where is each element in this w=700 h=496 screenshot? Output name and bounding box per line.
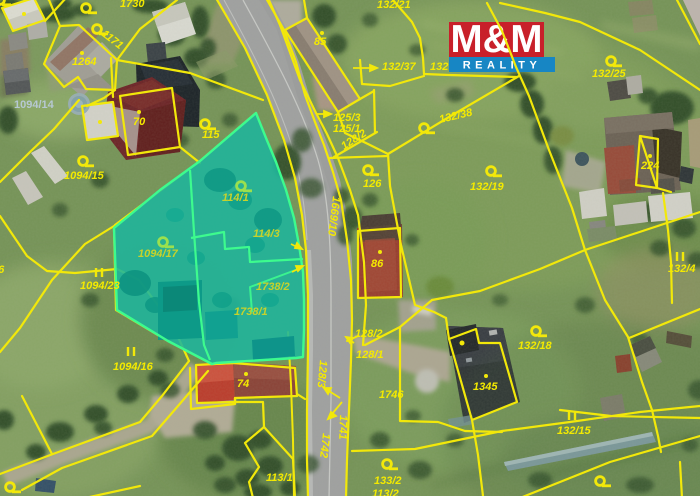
svg-text:126: 126	[363, 178, 382, 190]
svg-text:224: 224	[640, 160, 659, 172]
svg-text:132/21: 132/21	[377, 0, 411, 11]
svg-text:132/37: 132/37	[382, 61, 417, 73]
svg-text:113/2: 113/2	[372, 488, 399, 496]
svg-text:1345: 1345	[473, 381, 498, 393]
svg-text:128/2: 128/2	[355, 328, 383, 340]
svg-text:133/2: 133/2	[374, 475, 402, 487]
svg-text:132/25: 132/25	[592, 68, 627, 80]
svg-text:M&M: M&M	[451, 18, 543, 61]
svg-text:132/19: 132/19	[470, 181, 505, 193]
svg-text:REALITY: REALITY	[463, 60, 542, 72]
svg-text:132/4: 132/4	[668, 263, 696, 275]
svg-text:74: 74	[237, 378, 249, 390]
svg-text:114/3: 114/3	[253, 228, 280, 240]
svg-text:113/1: 113/1	[266, 472, 293, 484]
svg-text:1094/14: 1094/14	[14, 99, 55, 111]
svg-text:128/3: 128/3	[315, 360, 329, 388]
svg-text:86: 86	[371, 258, 384, 270]
svg-text:1738/2: 1738/2	[256, 281, 290, 293]
svg-text:132/18: 132/18	[518, 340, 553, 352]
svg-text:1094/23: 1094/23	[80, 280, 120, 292]
svg-text:1741: 1741	[336, 415, 349, 440]
svg-text:132: 132	[430, 61, 448, 73]
svg-text:114/1: 114/1	[222, 192, 249, 204]
svg-text:1264: 1264	[72, 56, 96, 68]
svg-text:132/15: 132/15	[557, 425, 592, 437]
svg-text:70: 70	[133, 116, 146, 128]
svg-text:1730: 1730	[120, 0, 145, 10]
svg-text:1094/17: 1094/17	[138, 248, 179, 260]
svg-text:1738/1: 1738/1	[234, 306, 268, 318]
svg-text:128/1: 128/1	[356, 349, 384, 361]
svg-text:1094/16: 1094/16	[113, 361, 154, 373]
svg-text:1094/15: 1094/15	[64, 170, 105, 182]
svg-text:115: 115	[202, 129, 220, 141]
svg-text:1746: 1746	[379, 389, 404, 401]
svg-text:85: 85	[314, 36, 327, 48]
